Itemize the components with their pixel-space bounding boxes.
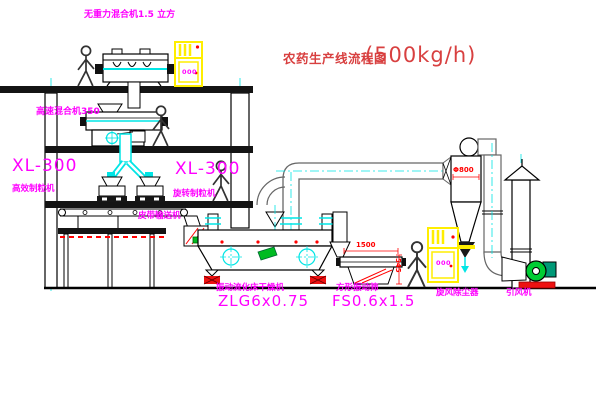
control-cabinet-top [175, 42, 202, 86]
label-zero-gravity-mixer: 无重力混合机1.5 立方 [84, 11, 175, 20]
zero-gravity-mixer [95, 49, 182, 86]
sieve-length-dimension: 1500 [356, 242, 375, 249]
label-fan-name: 引风机 [506, 289, 532, 298]
granulator-right [135, 172, 165, 202]
control-cabinet-ground [428, 228, 458, 282]
label-granulator-left-model: XL-300 [12, 158, 77, 175]
cabinet-display-readout: 000 [182, 69, 197, 76]
granulator-left [97, 172, 127, 202]
label-granulator-left-name: 高效制粒机 [12, 185, 55, 194]
label-granulator-right-model: XL-300 [175, 161, 240, 178]
sieve-height-dimension: 545 [394, 258, 401, 273]
cabinet-display-readout: 000 [436, 260, 451, 267]
dryer-exhaust-duct [257, 157, 451, 233]
label-granulator-right-name: 旋转制粒机 [173, 190, 216, 199]
worker-figure [78, 46, 94, 86]
floor-chute [128, 82, 140, 108]
label-sieve-model: FS0.6x1.5 [332, 294, 415, 309]
worker-figure [408, 242, 426, 287]
label-cyclone-name: 旋风除尘器 [436, 289, 479, 298]
label-belt-conveyor: 皮带输送机 [138, 212, 181, 221]
cad-drawing: 农药生产线流程图 (500kg/h) 无重力混合机1.5 立方 高速混合机350… [0, 0, 600, 403]
drawing-capacity: (500kg/h) [365, 45, 476, 66]
cyclone-diameter-dimension: Φ800 [453, 167, 474, 174]
label-dryer-model: ZLG6x0.75 [218, 294, 309, 309]
fluid-bed-dryer [198, 205, 335, 284]
label-high-speed-mixer: 高速混合机350 [36, 108, 100, 117]
sieve-feed-chute [330, 212, 350, 257]
